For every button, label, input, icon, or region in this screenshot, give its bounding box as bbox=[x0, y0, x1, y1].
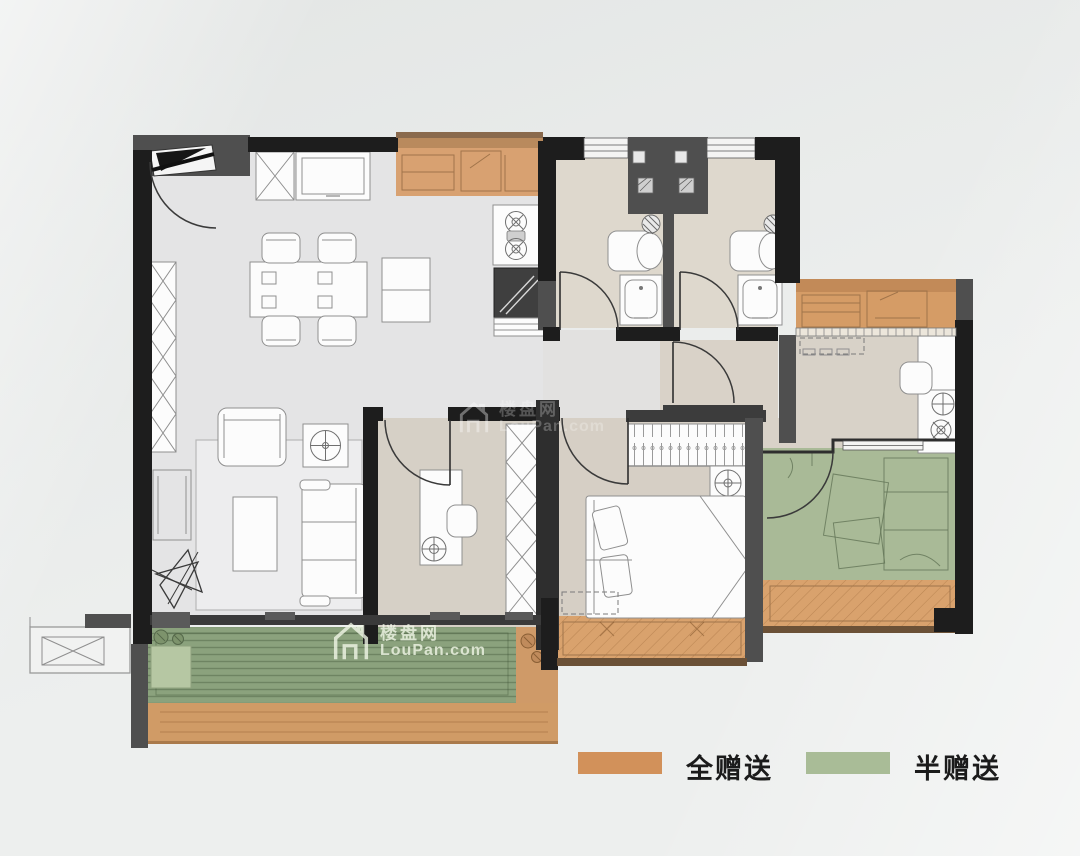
dining-table bbox=[250, 262, 367, 317]
storage-column bbox=[150, 262, 176, 452]
wardrobe bbox=[628, 424, 760, 466]
kitchen-counter bbox=[494, 318, 544, 336]
bottom-balcony-deck bbox=[148, 627, 516, 703]
half-gift-swatch bbox=[806, 752, 890, 774]
full-gift-swatch bbox=[578, 752, 662, 774]
master-bay-window bbox=[557, 616, 747, 662]
side-table-fan bbox=[303, 424, 348, 467]
ceiling-fan-icon bbox=[710, 466, 746, 500]
bed bbox=[562, 496, 746, 618]
floorplan-svg bbox=[0, 0, 1080, 856]
bookshelf bbox=[506, 424, 538, 616]
sofa bbox=[300, 480, 366, 606]
armchair bbox=[218, 408, 286, 466]
floorplan-page: 楼盘网 LouPan.com 楼盘网 LouPan.com 全赠送 半赠送 bbox=[0, 0, 1080, 856]
entry-cabinet bbox=[296, 152, 370, 200]
kitchen-cabinets-gifted bbox=[396, 136, 543, 196]
flex-louver-window bbox=[796, 328, 956, 336]
green-room-bay-window bbox=[763, 580, 957, 628]
bathroom-a-window bbox=[584, 138, 628, 158]
corridor-floor bbox=[543, 330, 665, 418]
shoe-cabinet bbox=[256, 152, 294, 200]
coffee-table bbox=[233, 497, 277, 571]
stove bbox=[493, 205, 540, 265]
green-room-window bbox=[843, 441, 923, 450]
bathroom-b-window bbox=[707, 138, 755, 158]
half-gift-label: 半赠送 bbox=[914, 747, 1001, 786]
bottom-balcony-gifted-band bbox=[148, 703, 558, 744]
full-gift-label: 全赠送 bbox=[686, 747, 773, 786]
refrigerator bbox=[494, 268, 542, 318]
kitchen-island bbox=[382, 258, 430, 322]
laundry-balcony bbox=[796, 279, 958, 335]
